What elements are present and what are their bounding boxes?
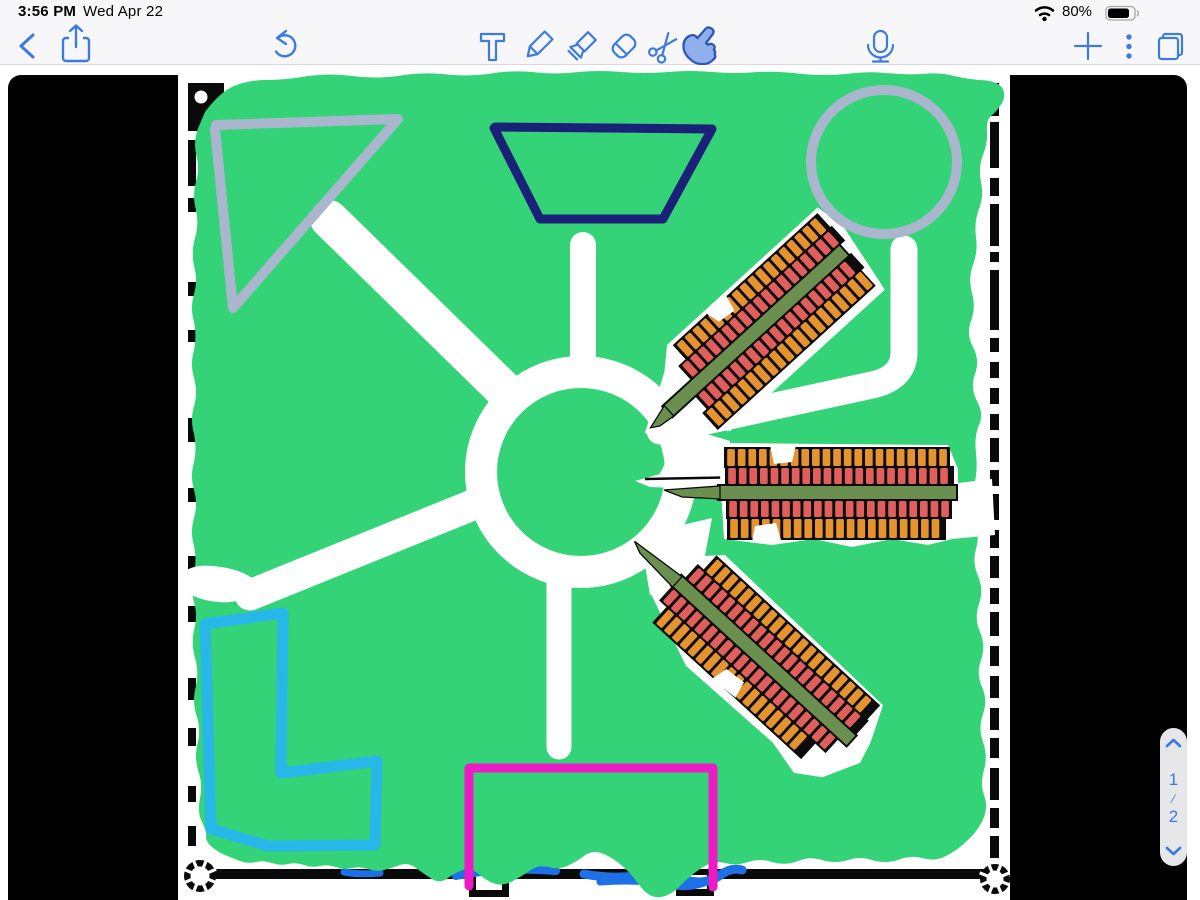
svg-text:2: 2: [1169, 807, 1178, 826]
svg-text:1: 1: [1169, 770, 1178, 789]
